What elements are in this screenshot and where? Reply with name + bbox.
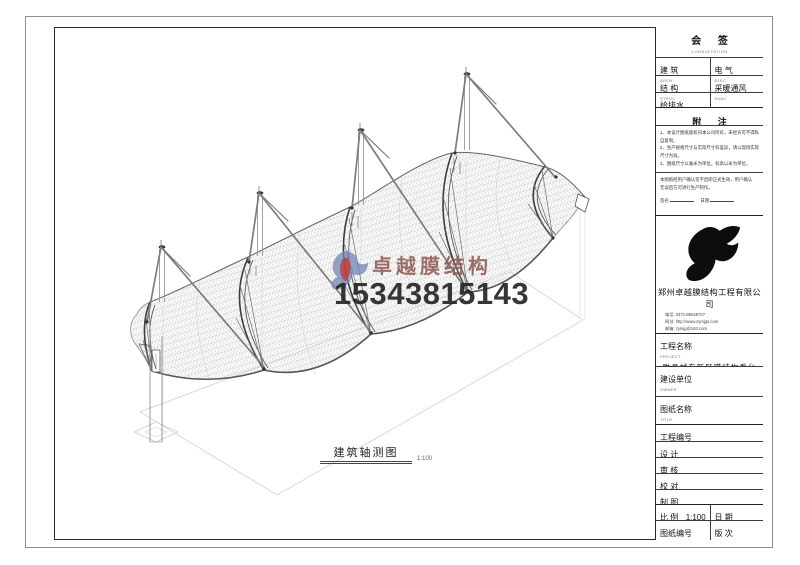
company-web: 网址: http://www.zymjgs.com	[665, 319, 763, 326]
contract-no-box: 工程编号 CONTRACT No.	[656, 424, 763, 441]
scale-value: 1:100	[686, 513, 706, 520]
designer-row: 设 计 DESIGNER	[656, 441, 763, 457]
drawing-sheet: 卓越膜结构 15343815143 建筑轴测图 1:100 会 签 CONSUL…	[0, 0, 800, 565]
owner-box: 建设单位 OWNER	[656, 366, 763, 396]
company-contacts: 电话: 0371-86548707 网址: http://www.zymjgs.…	[665, 312, 763, 333]
confirm-line: 本图纸经用户确认签字后即正式生效，用户确认	[660, 176, 760, 184]
company-logo-icon	[674, 220, 746, 284]
consult-grid: 建 筑 ARCH. 电 气 ELEC. 结 构 STRUC. 采暖通风 HVAC	[656, 57, 763, 107]
consult-cell-plumbing: 给排水 W.S.D.	[656, 93, 710, 107]
drawing-number-cell: 图纸编号 DRAWING No. S02	[656, 521, 710, 540]
note-line: 1、本设计图纸版权归本公司所有，未经许可不得私自复制。	[660, 129, 760, 144]
drawing-caption: 建筑轴测图	[320, 444, 412, 464]
dwgno-version-row: 图纸编号 DRAWING No. S02 版 次 VERSION No. VER…	[656, 520, 763, 540]
title-block: 会 签 CONSULTATION 建 筑 ARCH. 电 气 ELEC. 结 构…	[655, 27, 763, 540]
drawing-caption-scale: 1:100	[417, 456, 432, 462]
consult-cell-empty	[710, 93, 764, 107]
scale-cell: 比 例 SCALE 1:100	[656, 505, 710, 520]
drawn-row: 制 图 DRAWN	[656, 489, 763, 504]
project-name-box: 工程名称 PROJECT 睢县城东新区膜结构看台	[656, 333, 763, 366]
confirm-line: 无误后方可进行生产制作。	[660, 184, 760, 192]
signature-row: 签名: 日期:	[660, 197, 760, 204]
watermark-phone-number: 15343815143	[334, 276, 529, 312]
note-line: 3、图纸尺寸以毫米为单位，标高以米为单位。	[660, 160, 760, 168]
drawing-title-box: 图纸名称 TITLE 建筑轴测图	[656, 396, 763, 424]
company-mail: 邮箱: zymjg@163.com	[665, 326, 763, 333]
company-box: 郑州卓越膜结构工程有限公司 电话: 0371-86548707 网址: http…	[656, 215, 763, 333]
company-name: 郑州卓越膜结构工程有限公司	[656, 286, 763, 310]
watermark-brand-text: 卓越膜结构	[372, 250, 492, 279]
notes-box: 1、本设计图纸版权归本公司所有，未经许可不得私自复制。 2、生产规格尺寸与实际尺…	[656, 125, 763, 172]
consult-cell-struct: 结 构 STRUC.	[656, 76, 710, 92]
consult-cell-elec: 电 气 ELEC.	[710, 58, 764, 75]
date-cell: 日 期 DATE 2014.08.30	[710, 505, 764, 520]
scale-date-row: 比 例 SCALE 1:100 日 期 DATE 2014.08.30	[656, 504, 763, 520]
version-cell: 版 次 VERSION No. VER.01	[710, 521, 764, 540]
notes-header: 附 注 DESCRIPTION	[656, 107, 763, 125]
consult-cell-arch: 建 筑 ARCH.	[656, 58, 710, 75]
confirmation-box: 本图纸经用户确认签字后即正式生效，用户确认 无误后方可进行生产制作。 签名: 日…	[656, 172, 763, 215]
proofread-row: 校 对 PROOFREAD	[656, 473, 763, 489]
consult-cell-hvac: 采暖通风 HVAC	[710, 76, 764, 92]
checker-row: 审 核 CHECKER	[656, 457, 763, 473]
consult-header: 会 签 CONSULTATION	[656, 27, 763, 57]
note-line: 2、生产规格尺寸与实际尺寸有差异，请以现场实际尺寸为准。	[660, 144, 760, 159]
company-tel: 电话: 0371-86548707	[665, 312, 763, 319]
